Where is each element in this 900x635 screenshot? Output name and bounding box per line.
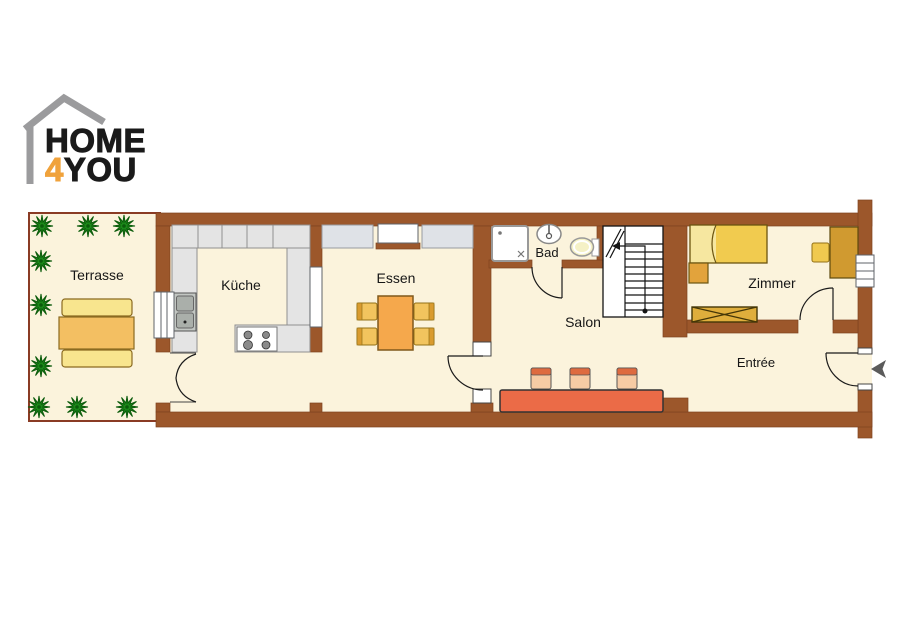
wall-dining-salon-stub bbox=[471, 403, 493, 412]
door-jamb bbox=[473, 342, 491, 356]
terrace-bench-bottom bbox=[62, 350, 132, 367]
logo: HOME 4YOU bbox=[25, 98, 146, 188]
terrace-bench-top bbox=[62, 299, 132, 316]
terrace-table bbox=[59, 317, 134, 349]
wall-left-lower bbox=[156, 403, 170, 412]
room-label-kueche: Küche bbox=[221, 277, 261, 293]
kitchen-cabinet-right bbox=[287, 248, 310, 327]
stair-walk-start-dot bbox=[643, 309, 648, 314]
entrance-arrow-icon bbox=[871, 360, 886, 378]
wall-kitchen-dining-lower bbox=[310, 327, 322, 352]
floorplan-page: HOME 4YOU bbox=[0, 0, 900, 635]
dining-window bbox=[378, 224, 418, 243]
sink-basin bbox=[177, 296, 194, 311]
chair-back bbox=[357, 303, 362, 320]
sofa-cushion-top bbox=[617, 368, 637, 375]
wall-kitchen-dining-stub bbox=[310, 403, 322, 412]
burner bbox=[263, 332, 270, 339]
chair-back bbox=[429, 328, 434, 345]
room-label-essen: Essen bbox=[377, 270, 416, 286]
door-jamb bbox=[858, 384, 872, 390]
dining-sideboard-left bbox=[322, 225, 373, 248]
room-label-zimmer: Zimmer bbox=[748, 275, 796, 291]
dining-sideboard-right bbox=[422, 225, 473, 248]
stove bbox=[237, 327, 277, 351]
wall-bath-bottom-right bbox=[562, 260, 606, 268]
staircase bbox=[603, 226, 663, 317]
logo-text-you: YOU bbox=[64, 151, 137, 188]
burner bbox=[262, 341, 270, 349]
room-label-terrasse: Terrasse bbox=[70, 267, 124, 283]
sofa bbox=[500, 390, 663, 412]
logo-text-line2: 4YOU bbox=[45, 151, 137, 188]
dining-table bbox=[378, 296, 413, 350]
kitchen-dining-window bbox=[310, 267, 322, 327]
chair-back bbox=[429, 303, 434, 320]
wall-top bbox=[156, 213, 872, 226]
burner bbox=[244, 341, 253, 350]
wall-zimmer-entree-right bbox=[833, 320, 858, 333]
room-label-salon: Salon bbox=[565, 314, 601, 330]
door-jamb bbox=[858, 348, 872, 354]
desk bbox=[830, 227, 858, 278]
sink-drain bbox=[184, 321, 187, 324]
wall-dining-salon bbox=[473, 226, 491, 342]
sofa-cushion-top bbox=[570, 368, 590, 375]
wall-salon-entree-stub bbox=[663, 398, 688, 412]
sofa-cushion-top bbox=[531, 368, 551, 375]
wall-bottom bbox=[156, 412, 872, 427]
room-label-entree: Entrée bbox=[737, 355, 775, 370]
wall-kitchen-dining-upper bbox=[310, 226, 322, 267]
dining-window-sill bbox=[376, 243, 420, 249]
wall-stairs-zimmer bbox=[663, 226, 687, 337]
desk-chair bbox=[812, 243, 829, 262]
room-label-bad: Bad bbox=[535, 245, 558, 260]
shower-head bbox=[498, 231, 502, 235]
floorplan-drawing: HOME 4YOU bbox=[0, 0, 900, 635]
terrace-window bbox=[154, 292, 174, 338]
chair-back bbox=[357, 328, 362, 345]
door-jamb bbox=[473, 389, 491, 403]
kitchen-counter-top bbox=[172, 225, 310, 248]
burner bbox=[244, 331, 252, 339]
logo-accent-4: 4 bbox=[45, 151, 64, 188]
nightstand bbox=[689, 263, 708, 283]
